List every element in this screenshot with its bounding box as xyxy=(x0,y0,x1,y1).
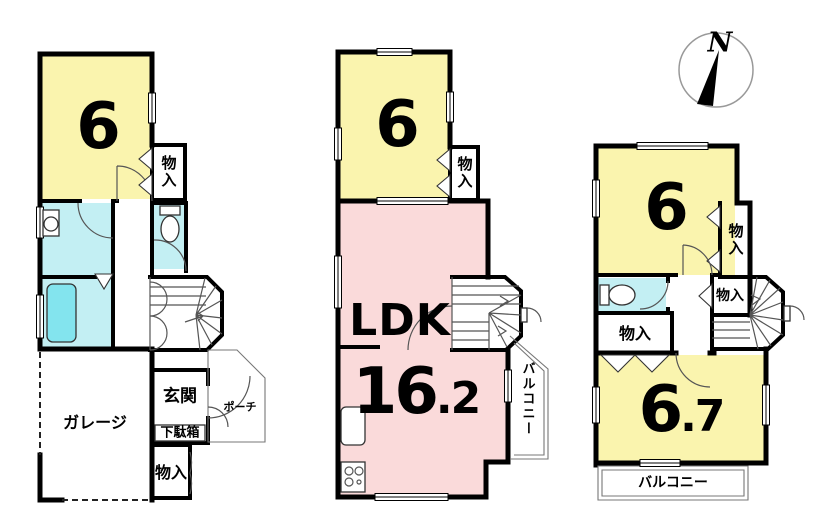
f3-room67-size-decimal: .7 xyxy=(680,395,723,439)
f1-stairs-arrow xyxy=(185,312,203,322)
f3-closet-middle-label: 物入 xyxy=(716,289,744,303)
floorplan-drawing xyxy=(0,0,840,528)
f3-toilet-tank-icon xyxy=(600,285,609,305)
f2-stove-icon xyxy=(341,462,365,492)
f3-stair-door-arc xyxy=(790,306,804,320)
f1-shoe-cabinet-label: 下駄箱 xyxy=(160,427,199,440)
floor2-plan xyxy=(335,49,549,501)
floorplan-canvas: 6 物入 玄関 下駄箱 ポーチ ガレージ 物入 6 物入 LDK 16.2 バル… xyxy=(0,0,840,528)
f1-stairs-walls xyxy=(150,277,222,350)
f3-closet-middle-door xyxy=(699,284,712,308)
f1-toilet-tank-icon xyxy=(160,206,180,215)
f1-garage-corner-wall xyxy=(40,455,62,500)
f2-ldk-size-whole: 16 xyxy=(353,360,436,424)
f3-closet-left-label: 物入 xyxy=(619,326,651,342)
compass-north-label: N xyxy=(708,30,733,57)
f2-closet-label: 物入 xyxy=(457,156,472,190)
f1-room6-size-label: 6 xyxy=(76,95,118,159)
f1-porch-label: ポーチ xyxy=(224,402,257,413)
f3-balcony-label: バルコニー xyxy=(638,476,708,490)
f2-stairs-treads-bottom xyxy=(452,322,489,340)
f3-stairs-treads xyxy=(712,322,750,338)
f3-room6-size-label: 6 xyxy=(644,176,686,240)
f1-porch-outline xyxy=(208,350,265,442)
f1-washbasin-bowl-icon xyxy=(44,217,58,231)
f3-room67-size-whole: 6 xyxy=(639,378,681,442)
f2-ldk-label: LDK xyxy=(349,299,451,343)
f2-stairs-walls xyxy=(452,277,521,350)
f1-stairs-winders xyxy=(150,282,167,350)
floor3-plan xyxy=(593,143,805,501)
f1-toilet-bowl-icon xyxy=(161,216,179,242)
f3-toilet-bowl-icon xyxy=(609,285,635,305)
f2-ldk-size-label: 16.2 xyxy=(353,360,479,424)
f2-room6-size-label: 6 xyxy=(375,93,417,157)
f2-stair-door-leaf xyxy=(521,308,527,322)
f2-stairs-arrows xyxy=(498,296,508,336)
f1-garage-label: ガレージ xyxy=(63,415,127,431)
f1-closet-lower-label: 物入 xyxy=(155,465,187,481)
f2-ldk-size-decimal: .2 xyxy=(436,377,479,421)
f1-closet-upper-label: 物入 xyxy=(161,155,176,189)
f3-stair-door-leaf xyxy=(784,306,790,321)
f1-bathtub-icon xyxy=(47,284,76,342)
floor1-plan xyxy=(37,54,266,500)
f3-room67-size-label: 6.7 xyxy=(639,378,724,442)
f2-stairs-treads-top xyxy=(452,277,521,350)
f2-stair-door-arc xyxy=(527,308,541,322)
f2-balcony-label: バルコニー xyxy=(521,362,534,437)
f3-closet-right-label: 物入 xyxy=(728,223,743,257)
f1-entrance-label: 玄関 xyxy=(163,389,197,406)
